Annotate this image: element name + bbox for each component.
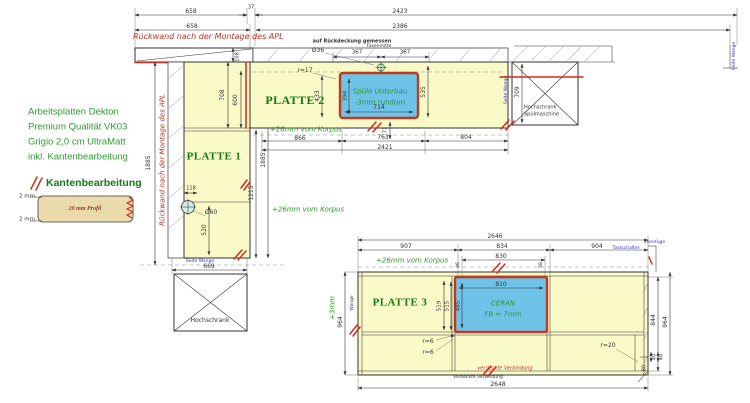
edge-top-label: 2 mm <box>19 194 35 200</box>
dim-37: 37 <box>248 6 254 11</box>
edge-bottom-label: 2 mm <box>19 217 35 223</box>
dim-709: 709 <box>515 86 521 97</box>
dim-866: 866 <box>294 136 305 142</box>
cad-drawing-canvas: Arbeitsplatten Dekton Premium Qualität V… <box>0 0 750 403</box>
dim-834: 834 <box>496 244 507 250</box>
seite-wange-tower: Seite Wange <box>505 76 510 104</box>
dim-40-a: 40 <box>653 354 658 360</box>
material-info-line-4: inkl. Kantenbearbeitung <box>28 152 128 162</box>
dim-71: 71 <box>384 127 389 133</box>
korpus-note-p2: +26mm vom Korpus <box>270 127 342 134</box>
note-rueckwand-left: Rückwand nach der Montage des APL <box>160 94 167 226</box>
verdeckte-verbindung-red: verdeckte Verbindung <box>477 367 532 372</box>
tastschalter-label: Tastschalter <box>613 247 640 252</box>
verdeckte-verbindung-black: Verdeckte Verbindung <box>453 376 503 381</box>
dim-810: 810 <box>495 282 506 288</box>
dim-669: 669 <box>203 264 214 270</box>
trennfuge-label: Trennfuge <box>643 241 665 246</box>
dim-367-right: 367 <box>400 50 411 56</box>
cabinet-label-p1: Hochschrank <box>191 318 230 324</box>
dim-58: 58 <box>540 262 545 268</box>
korpus-note-p1: +26mm vom Korpus <box>272 207 344 214</box>
dim-804: 804 <box>460 135 471 141</box>
dim-535: 535 <box>421 86 427 97</box>
dim-964-left: 964 <box>338 316 344 327</box>
dim-367-left: 367 <box>352 50 363 56</box>
dim-519: 519 <box>437 301 443 312</box>
dim-2646: 2646 <box>487 234 502 240</box>
tower-label-line-2: Spülmaschine <box>524 113 559 118</box>
dim-658-bottom: 658 <box>186 24 197 30</box>
platte-3-title: PLATTE 3 <box>373 298 428 309</box>
dim-485: 485 <box>456 301 462 312</box>
dim-763: 763 <box>377 135 388 141</box>
dim-2423: 2423 <box>392 9 407 15</box>
seite-wange-right-wall: Seite Wange <box>733 42 738 70</box>
dim-708: 708 <box>220 89 226 100</box>
dim-2421: 2421 <box>377 145 392 151</box>
profile-label: 20 mm Profil <box>69 206 102 212</box>
dim-2386: 2386 <box>392 24 407 30</box>
tower-label-line-1: Hochschrank <box>524 106 556 111</box>
plus3-note: +3mm <box>330 296 337 320</box>
dim-1885-left: 1885 <box>146 155 152 170</box>
dim-964-right: 964 <box>663 316 669 327</box>
dim-904: 904 <box>591 244 602 250</box>
sink-label-line-1: Spüle Unterbau <box>353 89 407 96</box>
material-info-line-1: Arbeitsplatten Dekton <box>28 107 119 117</box>
material-info-line-3: Grigio 2,0 cm UltraMatt <box>28 137 126 147</box>
dim-r6-b: r=6 <box>422 350 433 356</box>
dim-118: 118 <box>186 187 196 192</box>
dim-1215: 1215 <box>249 185 255 200</box>
dim-faucet-dia: Ø36 <box>312 48 324 54</box>
legend-title: Kantenbearbeitung <box>46 178 142 189</box>
dim-907: 907 <box>400 244 411 250</box>
dim-40-b: 40 <box>660 354 665 360</box>
dim-108: 108 <box>236 52 241 62</box>
material-info-line-2: Premium Qualität VK03 <box>28 122 127 132</box>
dim-520: 520 <box>202 224 208 235</box>
dim-714: 714 <box>373 105 384 111</box>
dim-844: 844 <box>651 314 657 325</box>
korpus-note-p3: +26mm vom Korpus <box>376 258 448 265</box>
dim-r6-a: r=6 <box>422 339 433 345</box>
dim-600: 600 <box>233 94 239 105</box>
dim-2648: 2648 <box>490 382 505 388</box>
dim-80: 80 <box>643 365 648 371</box>
dim-658-top: 658 <box>185 9 196 15</box>
note-rueckwand-top: Rückwand nach der Montage des APL <box>133 33 284 41</box>
dim-r17: r=17 <box>297 68 312 74</box>
cad-linework <box>0 0 750 403</box>
dim-46: 46 <box>457 262 462 268</box>
dim-515: 515 <box>445 301 451 312</box>
note-fasenmitte: Fasenmitte <box>367 45 392 50</box>
platte-1-title: PLATTE 1 <box>187 152 242 163</box>
dim-433: 433 <box>315 90 321 101</box>
ceran-label-line-2: FB = 7mm <box>484 312 521 319</box>
dim-1885-right: 1885 <box>261 152 267 167</box>
dim-r20: r=20 <box>600 343 615 349</box>
dim-394: 394 <box>343 91 349 102</box>
dim-830: 830 <box>495 254 506 260</box>
wange-label-p3: Wange <box>351 295 356 310</box>
ceran-label-line-1: CERAN <box>491 301 515 308</box>
dim-hole-dia: Ø60 <box>205 210 217 216</box>
